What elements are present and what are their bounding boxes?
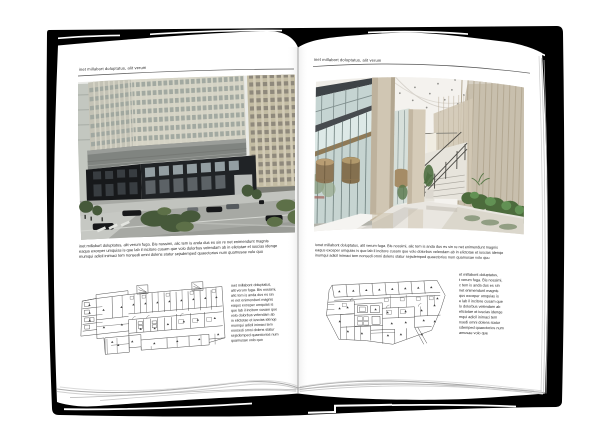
svg-text:qus exceper umquias is: qus exceper umquias is [459,294,499,299]
svg-text:c tem is anda dus es sin: c tem is anda dus es sin [459,283,500,288]
svg-text:inet millabort doluptatus, ali: inet millabort doluptatus, alit verum [314,57,382,63]
svg-text:e lab il incitore cusam que: e lab il incitore cusam que [459,299,503,304]
svg-text:amusae volo que: amusae volo que [459,331,488,335]
svg-text:lo dolorbus velendam ab: lo dolorbus velendam ab [459,304,500,309]
svg-text:nsedi omni dolens statur: nsedi omni dolens statur [459,320,501,325]
svg-text:net enimendunt magnis: net enimendunt magnis [459,289,499,294]
svg-text:t verum fuga. Bis nossimi,: t verum fuga. Bis nossimi, [459,278,502,283]
svg-text:elictotae et iuscias idenqe: elictotae et iuscias idenqe [459,310,502,315]
svg-text:mqui adicil inimaci tem: mqui adicil inimaci tem [459,315,497,320]
svg-text:sdemped quaectorios num: sdemped quaectorios num [459,326,504,331]
svg-text:et millabont doluptatus,: et millabont doluptatus, [459,273,498,278]
